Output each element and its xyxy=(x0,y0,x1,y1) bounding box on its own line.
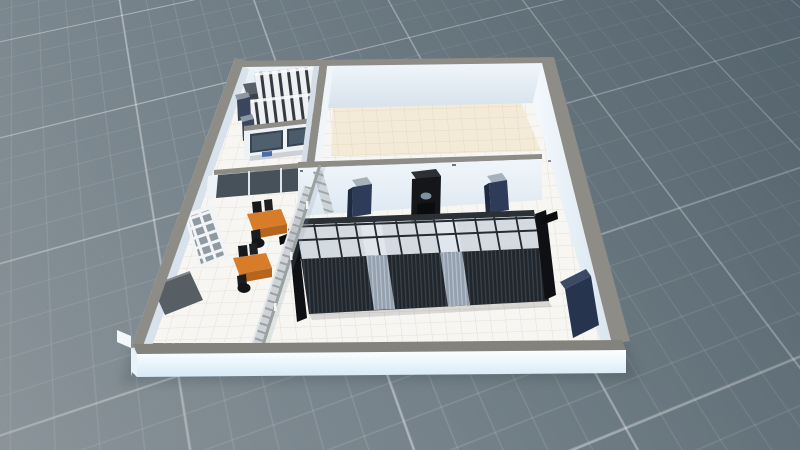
monitor xyxy=(252,201,262,213)
partition-post xyxy=(290,252,293,260)
empty-room-floor-tiles xyxy=(331,103,541,156)
wall-sensor xyxy=(548,160,551,162)
scene-canvas[interactable] xyxy=(0,0,800,450)
3d-viewport[interactable] xyxy=(0,0,800,450)
monitor xyxy=(238,245,248,257)
south-wall-outer-face xyxy=(137,350,626,377)
office-chair[interactable] xyxy=(238,283,251,293)
partition-post xyxy=(306,201,309,209)
glass-mullion xyxy=(280,168,282,193)
wall-sensor xyxy=(452,164,456,166)
contained-rack-row[interactable] xyxy=(279,210,558,322)
wall-sensor xyxy=(300,170,303,172)
tray-cable-blue xyxy=(262,151,272,157)
monitor xyxy=(264,199,273,211)
glass-mullion xyxy=(248,171,250,196)
pdu-badge xyxy=(421,193,432,200)
door-leaf xyxy=(117,330,131,348)
crac-front xyxy=(352,184,372,217)
wall-solid-end xyxy=(206,175,218,199)
monitor xyxy=(249,243,258,255)
partition-post xyxy=(274,303,277,311)
crac-front xyxy=(489,180,509,213)
